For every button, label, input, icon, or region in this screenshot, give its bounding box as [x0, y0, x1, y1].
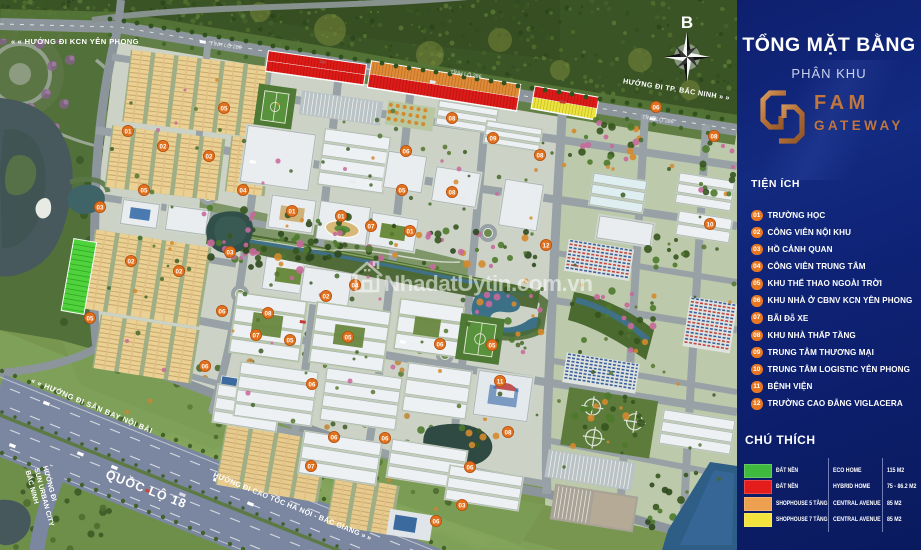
svg-text:06: 06	[467, 464, 474, 471]
svg-text:01: 01	[407, 228, 414, 235]
svg-text:06: 06	[202, 363, 209, 370]
svg-text:08: 08	[505, 429, 512, 436]
svg-text:07: 07	[368, 223, 375, 230]
svg-text:02: 02	[323, 293, 330, 300]
svg-text:08: 08	[449, 115, 456, 122]
svg-text:03: 03	[97, 204, 104, 211]
svg-text:07: 07	[308, 463, 315, 470]
svg-text:05: 05	[345, 334, 352, 341]
svg-text:08: 08	[265, 310, 272, 317]
svg-text:10: 10	[707, 221, 714, 228]
svg-text:GATEWAY: GATEWAY	[814, 118, 904, 133]
svg-text:B: B	[681, 13, 693, 32]
svg-text:01: 01	[125, 128, 132, 135]
svg-text:06: 06	[219, 308, 226, 315]
svg-text:01: 01	[338, 213, 345, 220]
svg-text:06: 06	[309, 381, 316, 388]
svg-text:« « HƯỚNG ĐI KCN YÊN PHONG: « « HƯỚNG ĐI KCN YÊN PHONG	[11, 37, 139, 46]
svg-text:07: 07	[253, 332, 260, 339]
svg-text:03: 03	[227, 249, 234, 256]
svg-text:06: 06	[653, 104, 660, 111]
svg-text:05: 05	[489, 342, 496, 349]
svg-text:06: 06	[433, 518, 440, 525]
svg-text:02: 02	[176, 268, 183, 275]
svg-text:08: 08	[537, 152, 544, 159]
svg-text:09: 09	[490, 135, 497, 142]
svg-text:05: 05	[221, 105, 228, 112]
svg-text:12: 12	[543, 242, 550, 249]
svg-text:01: 01	[289, 208, 296, 215]
svg-text:03: 03	[459, 502, 466, 509]
svg-text:02: 02	[128, 258, 135, 265]
svg-text:06: 06	[437, 341, 444, 348]
svg-text:04: 04	[240, 187, 247, 194]
svg-text:05: 05	[141, 187, 148, 194]
svg-text:08: 08	[711, 133, 718, 140]
svg-text:06: 06	[331, 434, 338, 441]
svg-text:05: 05	[87, 315, 94, 322]
svg-text:06: 06	[403, 148, 410, 155]
svg-text:02: 02	[206, 153, 213, 160]
svg-text:05: 05	[287, 337, 294, 344]
svg-text:11: 11	[497, 378, 504, 385]
svg-text:08: 08	[449, 189, 456, 196]
svg-text:NhadatUytin.com.vn: NhadatUytin.com.vn	[384, 271, 593, 296]
svg-text:02: 02	[160, 143, 167, 150]
svg-text:05: 05	[399, 187, 406, 194]
svg-text:06: 06	[382, 435, 389, 442]
svg-text:FAM: FAM	[814, 92, 870, 114]
